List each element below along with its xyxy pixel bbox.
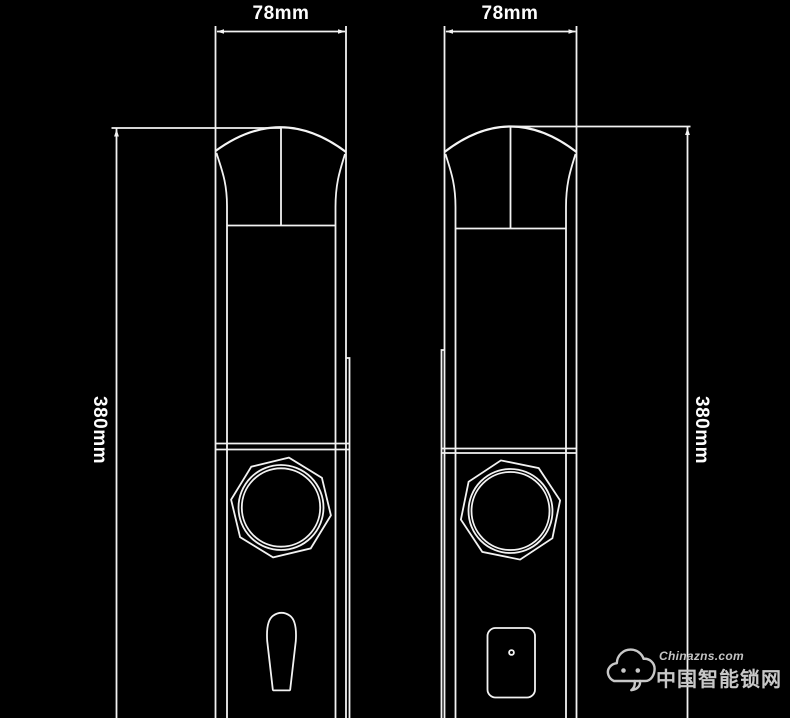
dial-ring-inner	[242, 468, 320, 546]
screw-dot	[509, 650, 514, 655]
cloud-eye-left	[621, 668, 626, 673]
lock-dimension-drawing: 78mm 78mm 380mm 380mm Chinazns.com 中国智能锁…	[0, 0, 790, 718]
watermark-brand: 中国智能锁网	[656, 663, 782, 692]
dial-ring-outer	[469, 469, 553, 553]
front-panel-outline	[216, 26, 350, 718]
back-width-label: 78mm	[460, 3, 560, 25]
cloud-mascot-icon	[608, 650, 655, 691]
cloud-eye-right	[636, 668, 641, 673]
back-height-dimension	[511, 127, 691, 718]
front-panel-keyhole-cover	[267, 613, 296, 691]
back-panel-outline	[442, 26, 577, 718]
back-height-label: 380mm	[690, 388, 712, 472]
front-width-dimension	[217, 29, 346, 34]
dial-ring-inner	[472, 472, 550, 550]
back-panel-dial-octagon	[461, 460, 560, 559]
watermark-url: Chinazns.com	[659, 649, 744, 663]
front-height-label: 380mm	[88, 388, 110, 472]
front-height-dimension	[112, 128, 282, 718]
front-panel-dial-octagon	[231, 458, 331, 558]
dial-ring-outer	[239, 465, 324, 550]
front-width-label: 78mm	[231, 3, 331, 25]
drawing-canvas	[0, 0, 790, 718]
back-width-dimension	[446, 29, 577, 34]
back-panel-battery-cover	[488, 628, 536, 698]
